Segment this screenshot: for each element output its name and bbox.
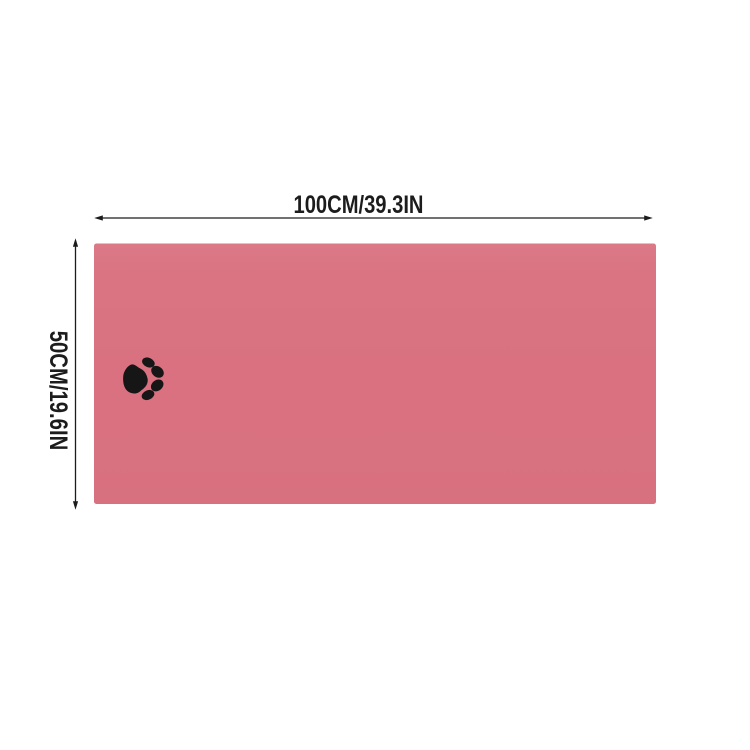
svg-text:100CM/39.3IN: 100CM/39.3IN — [294, 191, 424, 219]
svg-text:50CM/19.6IN: 50CM/19.6IN — [44, 331, 72, 451]
